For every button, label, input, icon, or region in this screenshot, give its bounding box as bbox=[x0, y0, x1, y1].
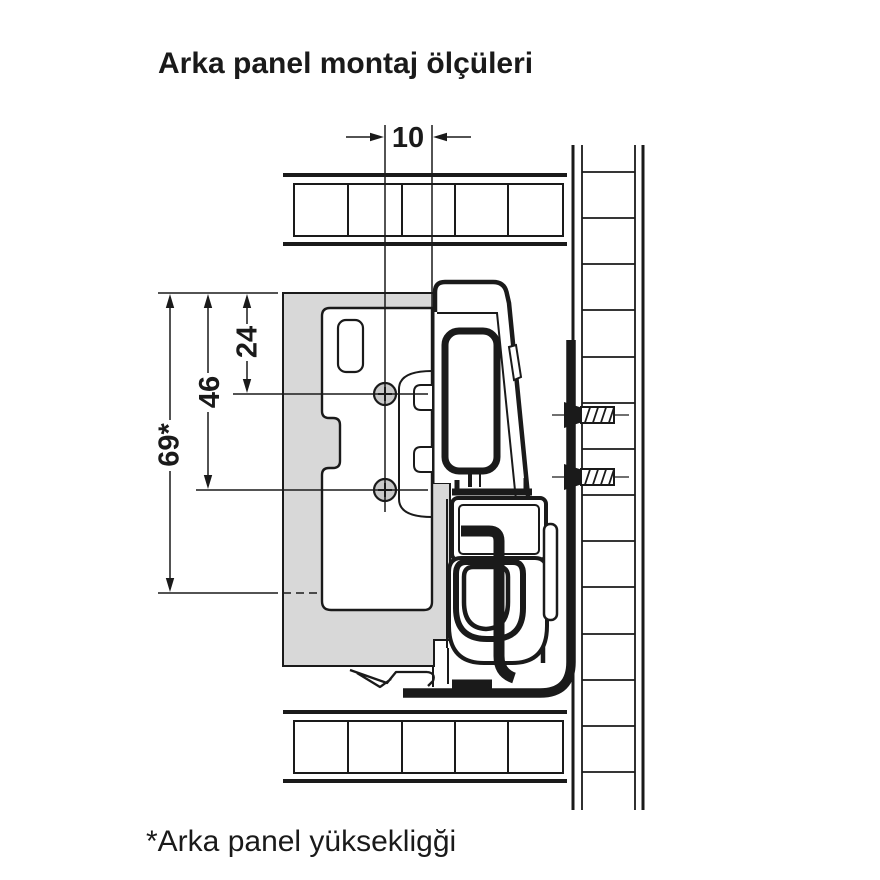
cap-vertical-slot bbox=[445, 331, 497, 471]
rear-panel-lock-assembly bbox=[447, 478, 557, 684]
bracket-notch-upper bbox=[414, 385, 432, 410]
bracket-slot bbox=[338, 320, 363, 372]
technical-drawing-page: 10 24 46 69* Arka panel montaj ölçüleri … bbox=[0, 0, 880, 880]
lock-right-arm bbox=[544, 524, 557, 620]
footnote: *Arka panel yüksekligği bbox=[146, 825, 456, 858]
dim-label-10: 10 bbox=[392, 122, 424, 154]
rear-panel-mounting-diagram: 10 24 46 69* Arka panel montaj ölçüleri … bbox=[0, 0, 880, 880]
bracket-notch-lower bbox=[414, 447, 432, 472]
dim-label-46: 46 bbox=[194, 376, 226, 408]
dim-label-24: 24 bbox=[232, 326, 264, 358]
page-title: Arka panel montaj ölçüleri bbox=[158, 47, 533, 80]
dim-label-69: 69* bbox=[154, 423, 186, 467]
